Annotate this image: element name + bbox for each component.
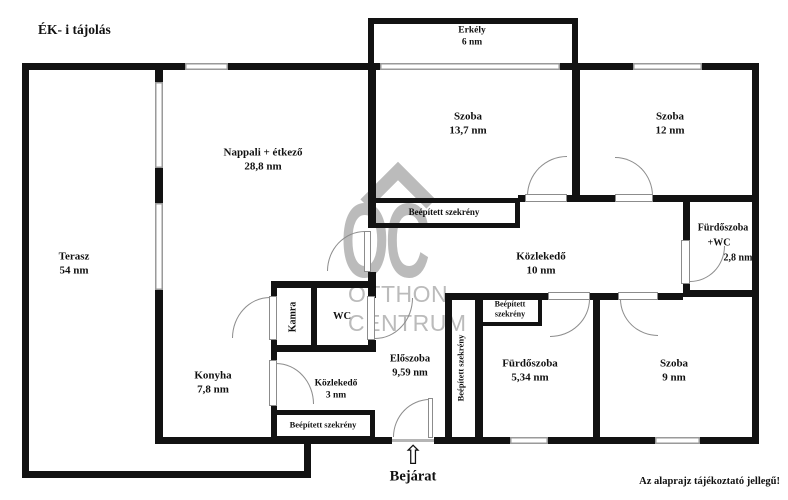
wall-segment [368,18,578,24]
wall-segment [271,281,376,288]
window [155,203,163,290]
door-arc [615,157,653,196]
door-leaf [364,231,371,272]
closet-label-eloszoba: Beépített szekrény [455,335,466,402]
door-arc [620,299,658,336]
door-arc [690,246,725,282]
door-arc [276,363,314,404]
wall-segment [22,471,311,478]
closet-label-konyha: Beépített szekrény [290,419,357,430]
wall-segment [683,290,759,297]
window [655,437,700,444]
room-label-furdoszoba-wc-area: 2,8 nm [724,252,753,265]
room-label-furdoszoba: Fürdőszoba 5,34 nm [502,357,558,386]
wall-segment [434,437,759,444]
room-label-erkely: Erkély 6 nm [458,25,485,50]
window [380,63,560,70]
room-label-kozlekedo-kis: Közlekedő 3 nm [315,378,358,403]
closet-label-furdoszoba: Beépített szekrény [495,300,526,321]
wall-segment [658,293,683,300]
wall-segment [155,290,163,437]
door-arc [327,231,365,271]
window [185,63,228,70]
wall-segment [22,63,29,478]
floor-plan: OC OTTHON CENTRUM [0,0,788,500]
wall-segment [155,168,163,203]
wall-segment [653,195,759,202]
room-label-szoba-kis: Szoba 9 nm [660,357,688,386]
door-leaf [618,292,658,300]
wall-segment [683,202,690,242]
window [510,437,548,444]
door-leaf [269,360,277,406]
page-title: ÉK- i tájolás [38,21,111,39]
wall-segment [445,300,452,437]
door-leaf [548,292,590,300]
window [155,82,163,168]
entrance-door-arc [393,399,430,437]
room-label-konyha: Konyha 7,8 nm [194,369,231,398]
closet-label-nappali: Beépített szekrény [409,207,480,219]
wall-segment [752,63,759,444]
room-label-furdoszoba-wc: Fürdőszoba [698,222,749,235]
wall-segment [368,18,374,63]
room-label-szoba-kozepes: Szoba 12 nm [655,110,684,139]
door-leaf [525,194,567,202]
wall-segment [155,63,163,82]
entrance-label: Bejárat [390,468,437,487]
room-label-szoba-nagy: Szoba 13,7 nm [449,110,486,139]
room-label-furdoszoba-wc2: +WC [708,237,731,250]
wall-segment [572,18,578,63]
wall-segment [572,70,580,198]
entrance-door-leaf [428,398,433,438]
room-label-eloszoba: Előszoba 9,59 nm [390,352,430,379]
room-label-kozlekedo-fo: Közlekedő 10 nm [516,250,566,279]
window [633,63,702,70]
room-label-kamra: Kamra [287,302,300,333]
room-label-nappali: Nappali + étkező 28,8 nm [224,146,303,175]
room-label-wc: WC [333,310,351,324]
disclaimer-note: Az alaprajz tájékoztató jellegű! [639,475,780,489]
room-label-terasz: Terasz 54 nm [59,250,90,279]
entrance-arrow-icon: ⇧ [402,443,424,469]
wall-segment [590,293,618,300]
door-leaf [681,240,690,284]
wall-segment [271,345,376,352]
door-arc [550,299,590,337]
door-leaf [367,296,375,340]
door-leaf [615,194,653,202]
wall-segment [311,288,317,346]
wall-segment [593,300,600,437]
door-arc [527,156,567,196]
door-arc [232,297,270,338]
door-leaf [269,296,277,340]
